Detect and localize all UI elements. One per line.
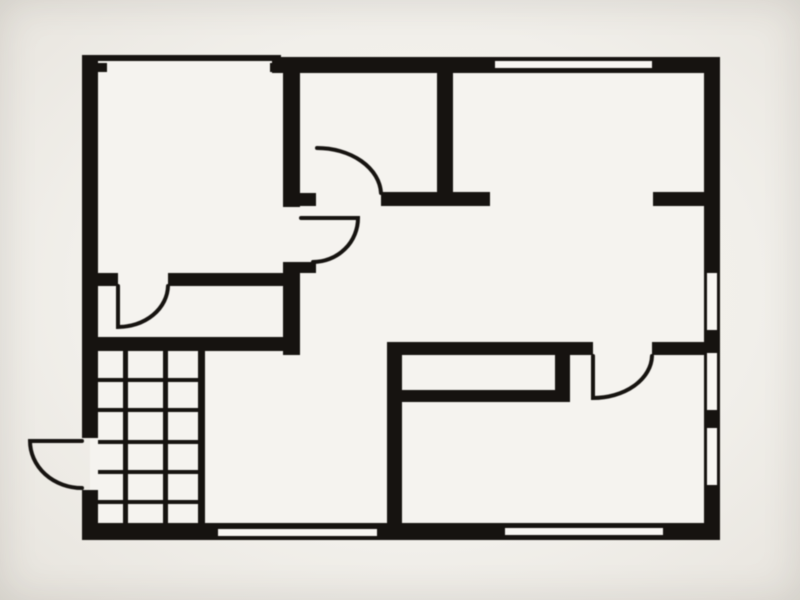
closet-top-thin-wall: [93, 55, 281, 61]
staircase-area: [98, 351, 205, 523]
topright-room-stub-wall: [653, 192, 708, 206]
stair-tread-3: [98, 440, 200, 444]
stair-tread-5: [98, 500, 200, 504]
bottomright-room-top-wall-right: [652, 342, 708, 355]
counter-right-edge: [555, 355, 570, 402]
stair-tread-1: [98, 378, 200, 382]
closet-bottom-wall-right: [168, 273, 283, 286]
closet-right-wall-upper: [283, 61, 300, 207]
center-divider-wall: [437, 59, 453, 193]
bottomright-room-top-wall-left: [387, 342, 593, 355]
stair-tread-2: [98, 408, 200, 412]
door-entry-exterior: [30, 441, 82, 488]
stair-divider-2: [163, 351, 168, 523]
hall-top-wall-right: [381, 192, 490, 206]
bottomright-room-left-wall: [387, 343, 402, 528]
window-right-upper: [707, 273, 717, 330]
window-bottom-right: [505, 528, 663, 535]
window-bottom-left: [218, 529, 377, 536]
window-top-wall: [495, 61, 652, 68]
counter-bottom-edge: [398, 390, 555, 402]
closet-bottom-wall-left: [98, 273, 118, 286]
staircase-right-edge: [198, 351, 205, 523]
hall-top-wall-left: [283, 193, 316, 206]
stair-tread-4: [98, 470, 200, 474]
window-right-lower: [707, 428, 717, 485]
left-exterior-wall-upper: [82, 55, 98, 438]
floor-plan-canvas: [0, 0, 800, 600]
window-right-middle: [707, 353, 717, 410]
floor-plan: [0, 0, 800, 600]
stair-divider-1: [123, 351, 128, 523]
landing-wall: [98, 337, 300, 351]
